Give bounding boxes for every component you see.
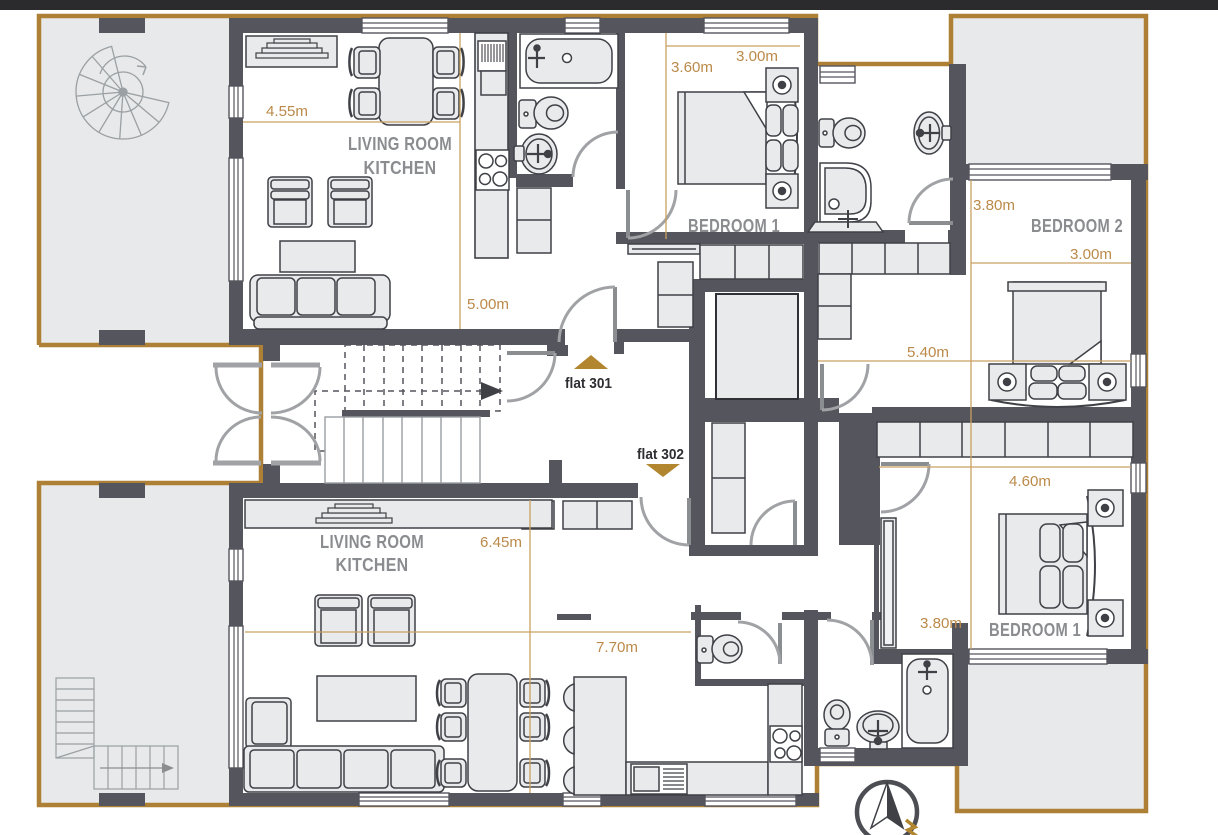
- svg-text:BEDROOM 1: BEDROOM 1: [688, 215, 780, 236]
- svg-text:KITCHEN: KITCHEN: [336, 554, 409, 575]
- svg-text:BEDROOM 2: BEDROOM 2: [1031, 215, 1123, 236]
- svg-text:7.70m: 7.70m: [596, 639, 638, 656]
- svg-text:BEDROOM 1: BEDROOM 1: [989, 619, 1081, 640]
- svg-text:4.55m: 4.55m: [266, 103, 308, 120]
- svg-text:3.00m: 3.00m: [1070, 246, 1112, 263]
- svg-text:KITCHEN: KITCHEN: [364, 157, 437, 178]
- svg-text:4.60m: 4.60m: [1009, 473, 1051, 490]
- svg-text:flat 302: flat 302: [637, 446, 684, 463]
- svg-text:3.80m: 3.80m: [920, 615, 962, 632]
- svg-text:5.40m: 5.40m: [907, 344, 949, 361]
- svg-text:6.45m: 6.45m: [480, 534, 522, 551]
- svg-text:3.00m: 3.00m: [736, 48, 778, 65]
- svg-text:LIVING ROOM: LIVING ROOM: [320, 531, 424, 552]
- svg-text:3.80m: 3.80m: [973, 197, 1015, 214]
- svg-text:3.60m: 3.60m: [671, 59, 713, 76]
- svg-text:flat 301: flat 301: [565, 375, 612, 392]
- svg-text:LIVING ROOM: LIVING ROOM: [348, 133, 452, 154]
- svg-text:5.00m: 5.00m: [467, 296, 509, 313]
